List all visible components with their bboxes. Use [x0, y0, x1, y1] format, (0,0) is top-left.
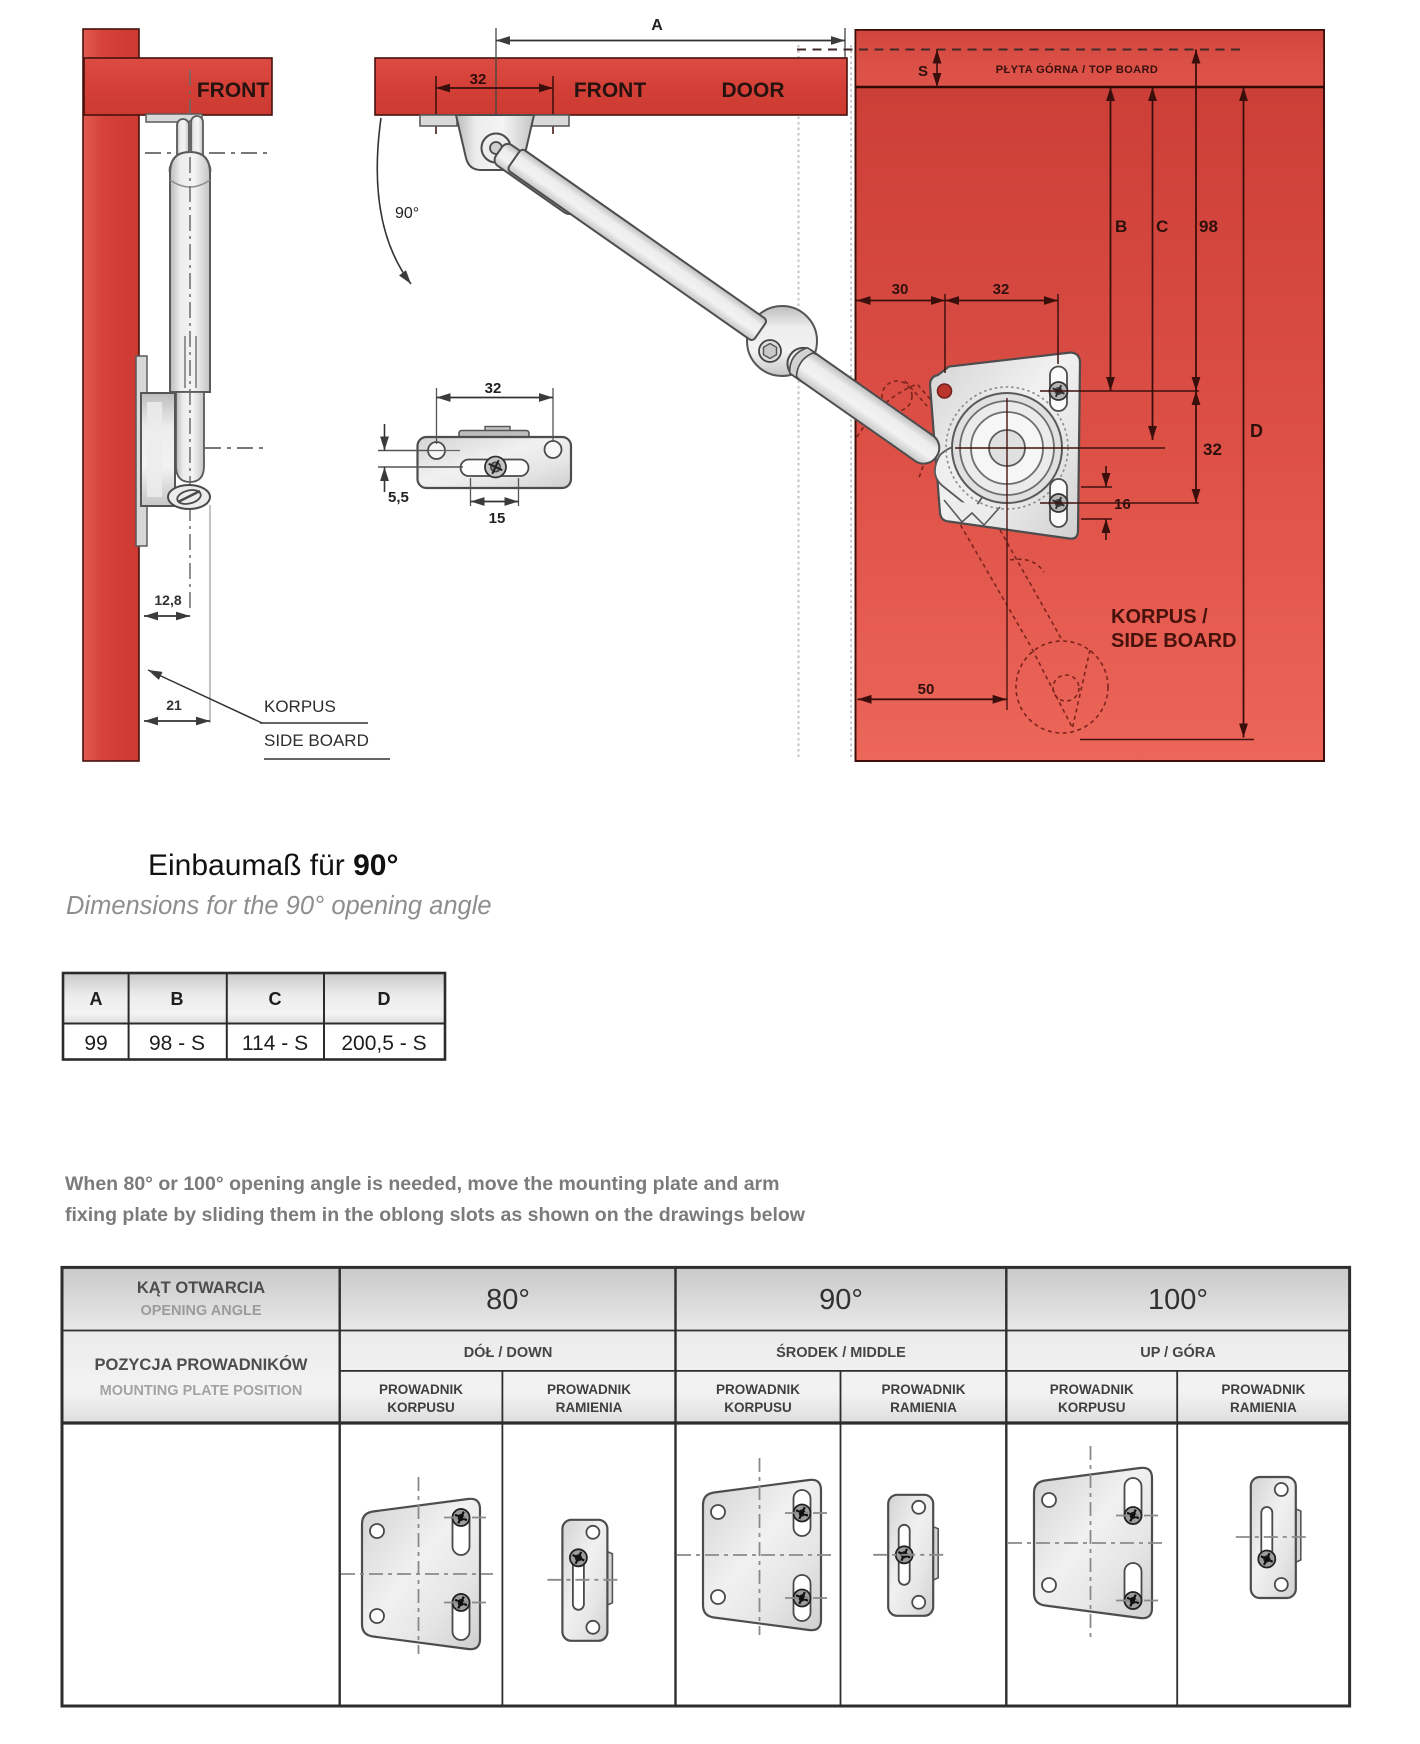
- svg-text:PŁYTA GÓRNA / TOP BOARD: PŁYTA GÓRNA / TOP BOARD: [996, 63, 1158, 76]
- svg-text:PROWADNIK: PROWADNIK: [882, 1382, 966, 1397]
- svg-text:114 - S: 114 - S: [242, 1032, 308, 1055]
- svg-text:30: 30: [892, 281, 909, 298]
- svg-text:RAMIENIA: RAMIENIA: [890, 1400, 957, 1415]
- svg-text:RAMIENIA: RAMIENIA: [556, 1400, 623, 1415]
- svg-text:UP / GÓRA: UP / GÓRA: [1140, 1343, 1216, 1361]
- svg-text:98 - S: 98 - S: [149, 1032, 205, 1055]
- svg-text:KORPUSU: KORPUSU: [1058, 1400, 1126, 1415]
- svg-text:21: 21: [166, 697, 182, 713]
- svg-text:A: A: [651, 17, 663, 34]
- svg-text:90°: 90°: [395, 205, 419, 222]
- svg-text:PROWADNIK: PROWADNIK: [547, 1382, 631, 1397]
- svg-text:KORPUS /: KORPUS /: [1111, 606, 1208, 628]
- svg-text:80°: 80°: [486, 1284, 530, 1316]
- svg-text:ŚRODEK / MIDDLE: ŚRODEK / MIDDLE: [776, 1343, 906, 1361]
- svg-text:FRONT: FRONT: [197, 79, 269, 102]
- svg-text:16: 16: [1114, 496, 1131, 513]
- svg-text:SIDE BOARD: SIDE BOARD: [264, 731, 369, 750]
- svg-text:Dimensions for the 90° opening: Dimensions for the 90° opening angle: [66, 892, 492, 920]
- svg-text:SIDE BOARD: SIDE BOARD: [1111, 630, 1237, 652]
- svg-text:12,8: 12,8: [154, 592, 181, 608]
- svg-text:PROWADNIK: PROWADNIK: [1221, 1382, 1305, 1397]
- svg-text:DÓŁ / DOWN: DÓŁ / DOWN: [464, 1343, 553, 1361]
- svg-text:32: 32: [993, 281, 1010, 298]
- svg-text:C: C: [269, 989, 282, 1009]
- svg-text:DOOR: DOOR: [722, 79, 785, 102]
- svg-text:PROWADNIK: PROWADNIK: [379, 1382, 463, 1397]
- svg-text:RAMIENIA: RAMIENIA: [1230, 1400, 1297, 1415]
- svg-text:200,5 - S: 200,5 - S: [341, 1032, 426, 1055]
- svg-text:15: 15: [489, 510, 506, 527]
- svg-text:KORPUSU: KORPUSU: [387, 1400, 455, 1415]
- svg-text:When 80° or 100° opening angle: When 80° or 100° opening angle is needed…: [65, 1173, 779, 1195]
- svg-text:fixing plate by sliding them i: fixing plate by sliding them in the oblo…: [65, 1204, 806, 1226]
- svg-text:98: 98: [1199, 217, 1218, 236]
- svg-text:Einbaumaß für 90°: Einbaumaß für 90°: [148, 849, 398, 882]
- svg-text:D: D: [1250, 421, 1263, 441]
- svg-text:B: B: [171, 989, 184, 1009]
- svg-text:KĄT OTWARCIA: KĄT OTWARCIA: [137, 1279, 265, 1297]
- svg-text:B: B: [1115, 217, 1127, 236]
- svg-text:PROWADNIK: PROWADNIK: [716, 1382, 800, 1397]
- svg-text:100°: 100°: [1148, 1284, 1208, 1316]
- svg-text:32: 32: [1203, 440, 1222, 459]
- svg-text:KORPUSU: KORPUSU: [724, 1400, 792, 1415]
- svg-text:MOUNTING PLATE POSITION: MOUNTING PLATE POSITION: [100, 1383, 303, 1399]
- svg-text:POZYCJA PROWADNIKÓW: POZYCJA PROWADNIKÓW: [95, 1355, 308, 1374]
- svg-text:32: 32: [470, 71, 487, 88]
- svg-text:99: 99: [84, 1032, 107, 1055]
- svg-text:KORPUS: KORPUS: [264, 697, 336, 716]
- svg-text:FRONT: FRONT: [574, 79, 646, 102]
- svg-text:5,5: 5,5: [388, 489, 409, 506]
- svg-text:S: S: [918, 63, 928, 80]
- svg-text:C: C: [1156, 217, 1168, 236]
- svg-text:A: A: [90, 989, 103, 1009]
- svg-text:OPENING ANGLE: OPENING ANGLE: [140, 1303, 261, 1319]
- svg-text:90°: 90°: [819, 1284, 863, 1316]
- svg-text:50: 50: [918, 681, 935, 698]
- svg-text:D: D: [378, 989, 391, 1009]
- svg-text:PROWADNIK: PROWADNIK: [1050, 1382, 1134, 1397]
- svg-text:32: 32: [485, 380, 502, 397]
